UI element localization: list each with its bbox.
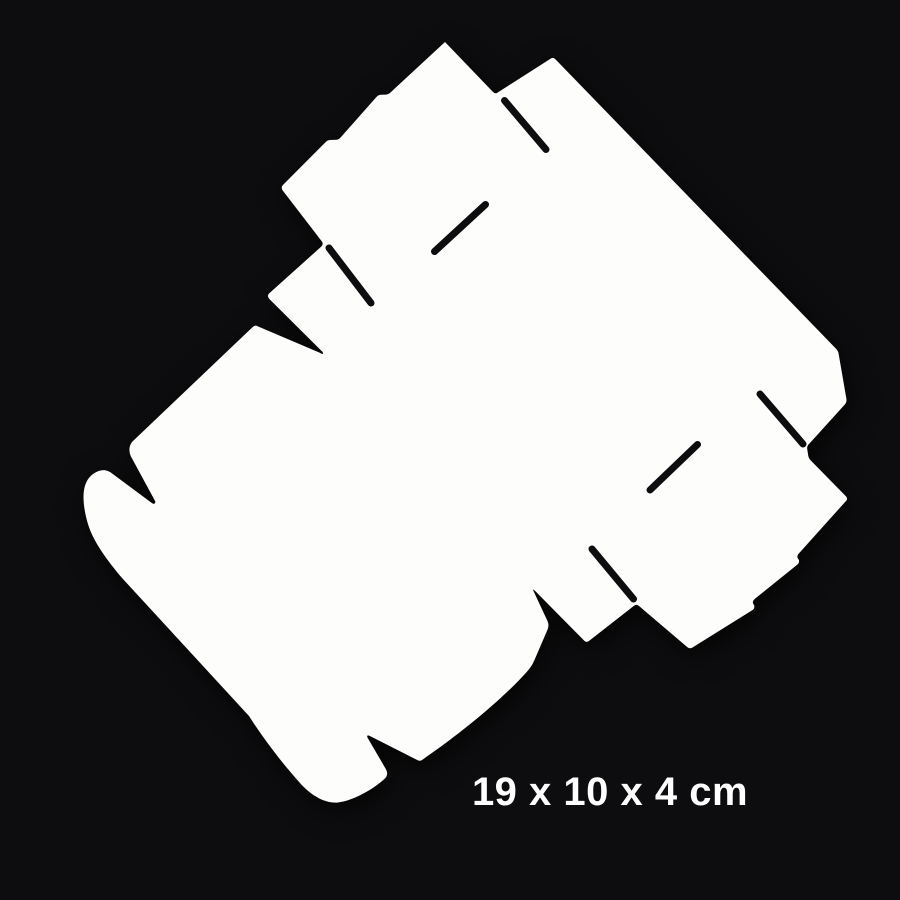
dimension-label: 19 x 10 x 4 cm [450, 772, 770, 812]
dieline-photo-canvas [0, 0, 900, 900]
product-photo: 19 x 10 x 4 cm [0, 0, 900, 900]
